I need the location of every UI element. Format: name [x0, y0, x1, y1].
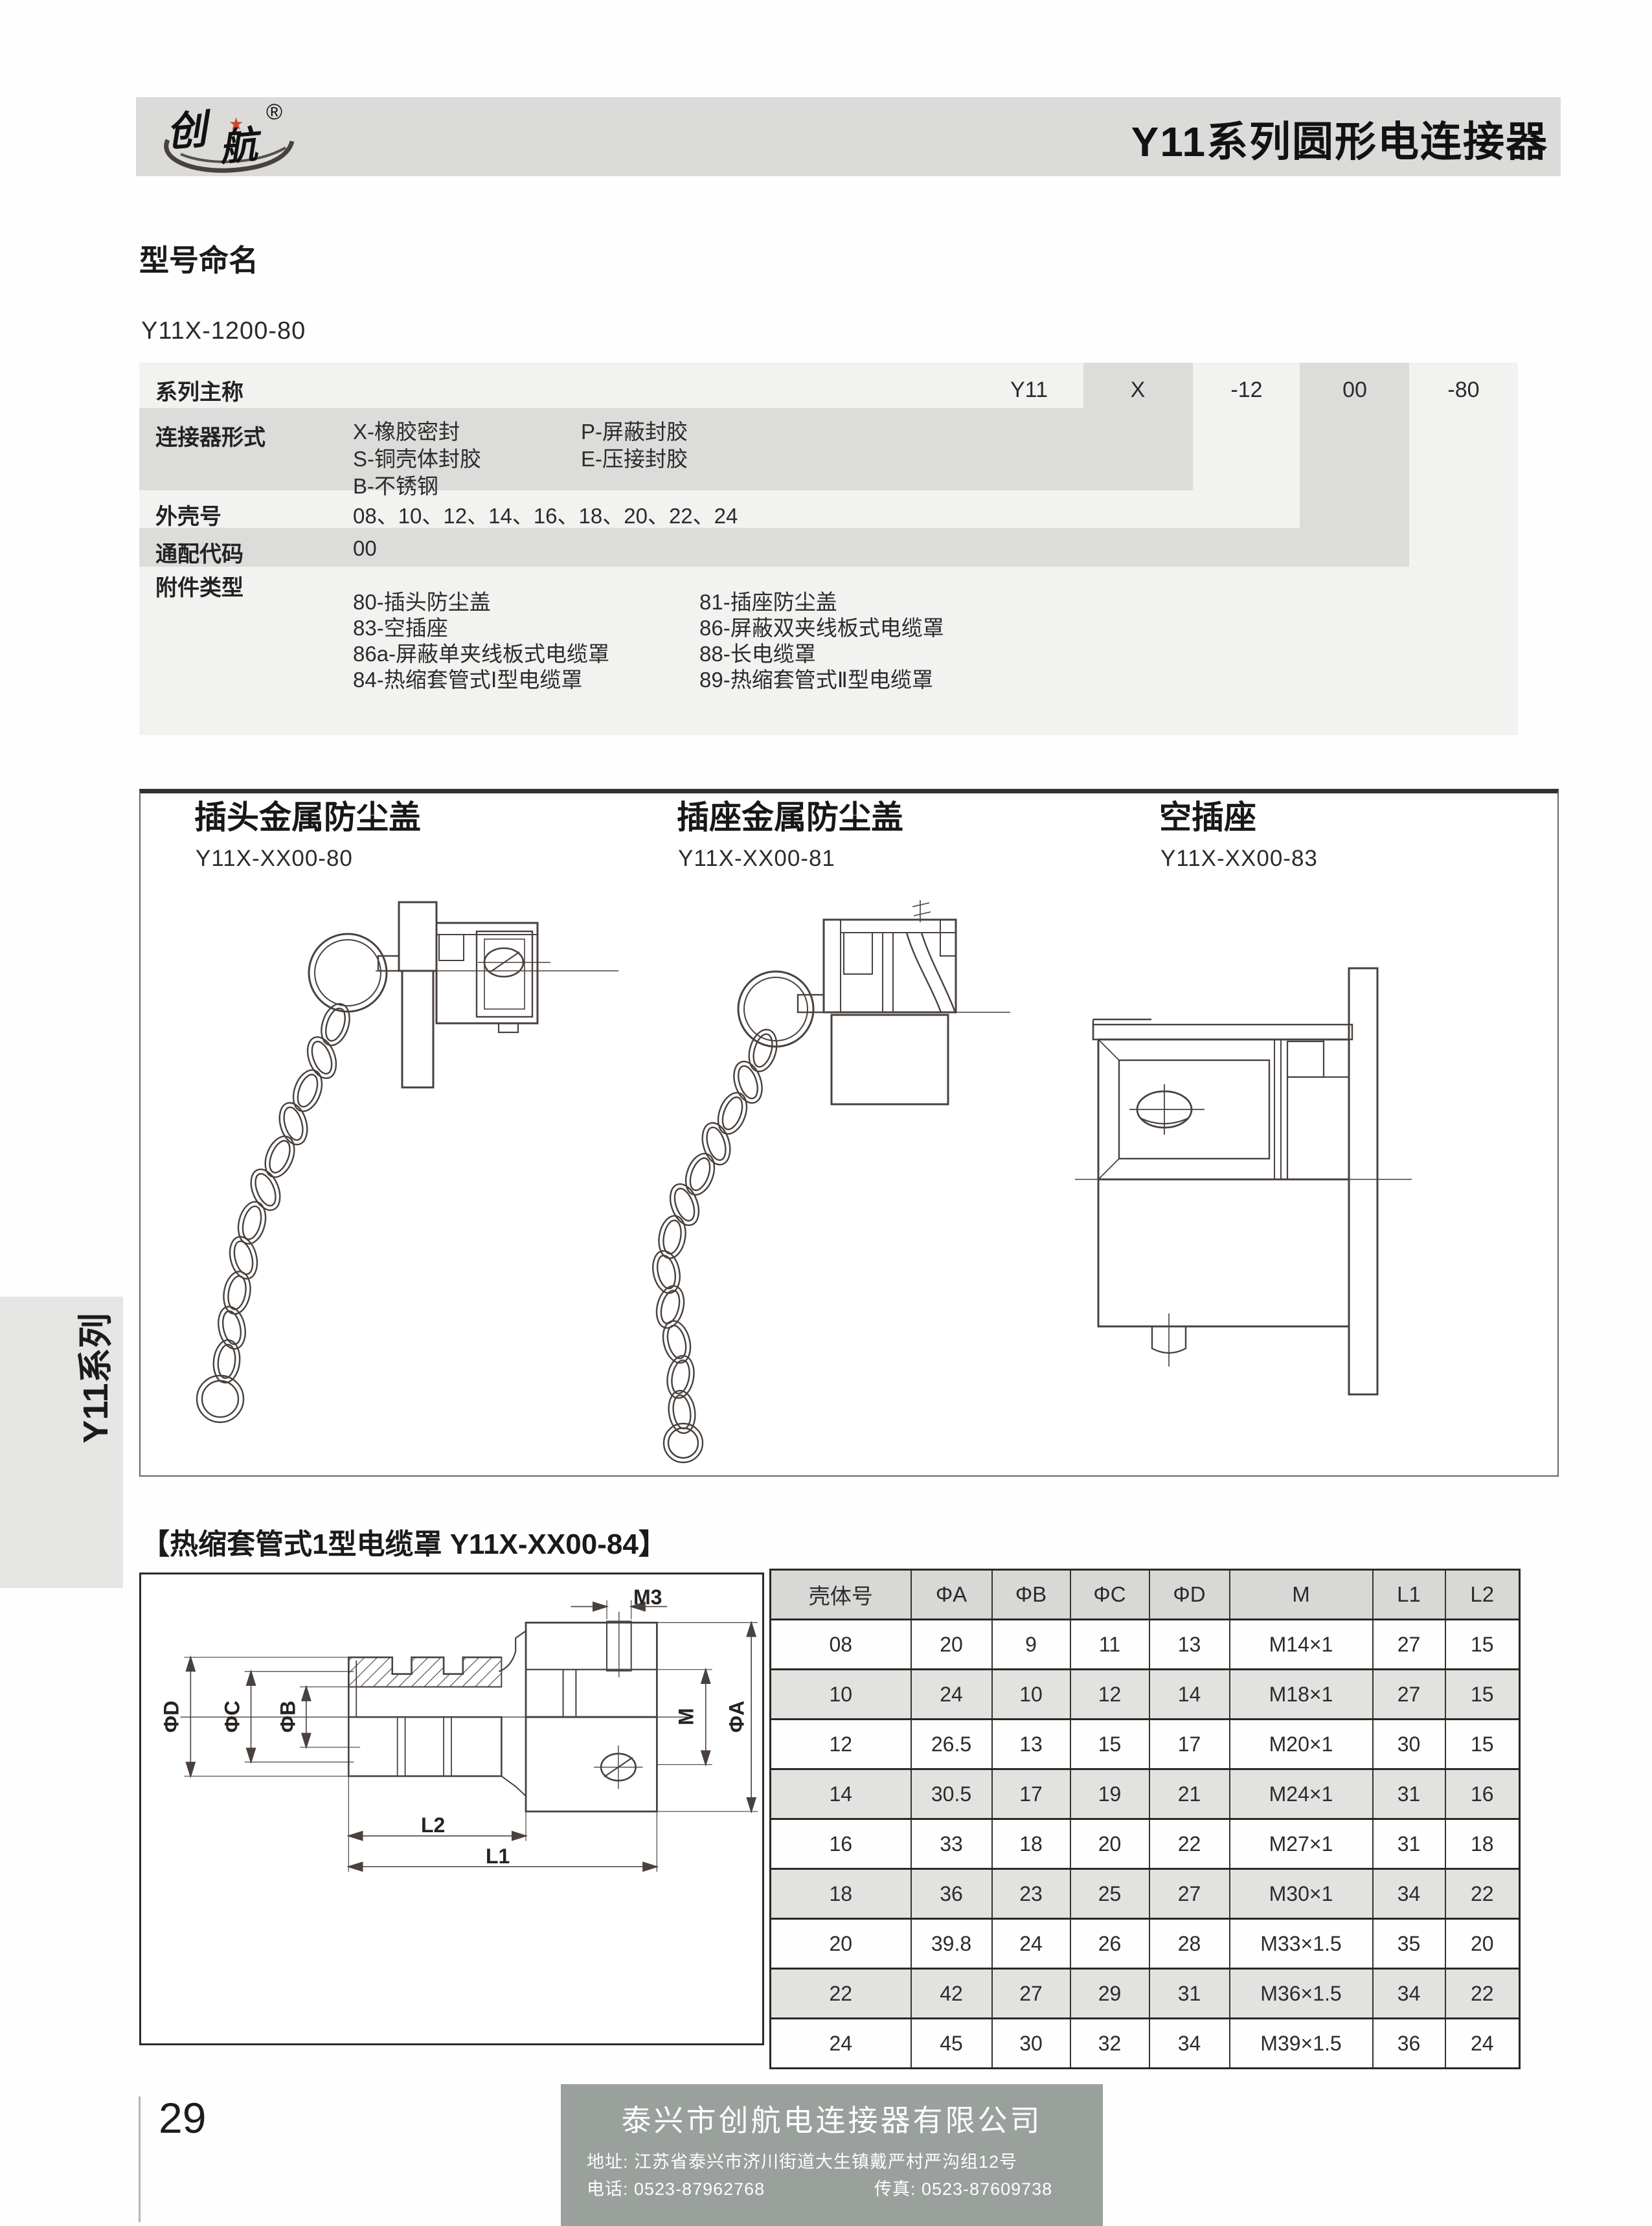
spec-cell: 35	[1373, 1919, 1445, 1969]
spec-table-row: 1430.5171921M24×13116	[771, 1769, 1520, 1819]
spec-cell: M18×1	[1230, 1670, 1373, 1720]
spec-table-row: 1226.5131517M20×13015	[771, 1720, 1520, 1769]
spec-cell: 28	[1149, 1919, 1230, 1969]
code-part-shell: -12	[1208, 372, 1285, 408]
spec-cell: 42	[911, 1969, 992, 2019]
spec-table-row: 1633182022M27×13118	[771, 1819, 1520, 1869]
spec-cell: 20	[911, 1620, 992, 1670]
spec-cell: 27	[992, 1969, 1070, 2019]
spec-cell: 24	[992, 1919, 1070, 1969]
naming-row-band-1	[139, 363, 1083, 408]
spec-cell: 12	[1070, 1670, 1149, 1720]
spec-cell: 34	[1149, 2019, 1230, 2069]
drawing-model-socket-cap: Y11X-XX00-81	[678, 846, 835, 872]
spec-cell: 08	[771, 1620, 911, 1670]
spec-cell: 29	[1070, 1969, 1149, 2019]
spec-cell: 27	[1373, 1620, 1445, 1670]
company-logo: 创 航 ★ ®	[159, 98, 308, 175]
model-example-code: Y11X-1200-80	[141, 317, 306, 345]
spec-cell: 18	[1445, 1819, 1520, 1869]
spec-cell: M36×1.5	[1230, 1969, 1373, 2019]
spec-cell: 18	[771, 1869, 911, 1919]
dim-label-phi-c: ΦC	[221, 1690, 245, 1744]
spec-cell: 14	[1149, 1670, 1230, 1720]
spec-cell: M20×1	[1230, 1720, 1373, 1769]
spec-cell: 26	[1070, 1919, 1149, 1969]
form-option: P-屏蔽封胶	[581, 415, 688, 446]
spec-cell: 17	[992, 1769, 1070, 1819]
row-label-accessory: 附件类型	[155, 570, 243, 602]
spec-cell: 15	[1445, 1620, 1520, 1670]
spec-cell: 22	[1445, 1969, 1520, 2019]
spec-cell: 30.5	[911, 1769, 992, 1819]
company-address: 地址: 江苏省泰兴市济川街道大生镇戴严村严沟组12号	[587, 2148, 1017, 2173]
drawing-title-socket-cap: 插座金属防尘盖	[677, 791, 903, 838]
spec-cell: 32	[1070, 2019, 1149, 2069]
registered-trademark-icon: ®	[266, 100, 282, 124]
form-option: E-压接封胶	[581, 442, 688, 473]
code-part-form: X	[1099, 372, 1177, 408]
spec-cell: M30×1	[1230, 1869, 1373, 1919]
spec-cell: 30	[992, 2019, 1070, 2069]
spec-cell: M24×1	[1230, 1769, 1373, 1819]
common-code: 00	[353, 536, 377, 561]
spec-cell: 17	[1149, 1720, 1230, 1769]
row-label-common: 通配代码	[155, 536, 243, 568]
company-name: 泰兴市创航电连接器有限公司	[561, 2097, 1103, 2140]
spec-cell: 19	[1070, 1769, 1149, 1819]
spec-cell: 13	[1149, 1620, 1230, 1670]
row-label-form: 连接器形式	[155, 420, 266, 451]
dim-label-l1: L1	[486, 1845, 510, 1868]
logo-char-1: 创	[164, 107, 214, 155]
spec-cell: 31	[1373, 1819, 1445, 1869]
spec-cell: 20	[771, 1919, 911, 1969]
spec-cell: 27	[1149, 1869, 1230, 1919]
empty-socket-drawing	[1075, 938, 1438, 1401]
spec-cell: 9	[992, 1620, 1070, 1670]
spec-cell: 27	[1373, 1670, 1445, 1720]
spec-table-row: 2445303234M39×1.53624	[771, 2019, 1520, 2069]
form-option: S-铜壳体封胶	[353, 442, 481, 473]
spec-cell: 12	[771, 1720, 911, 1769]
col-header-phi-d: ΦD	[1149, 1570, 1230, 1620]
spec-cell: 24	[1445, 2019, 1520, 2069]
spec-cell: 20	[1070, 1819, 1149, 1869]
col-header-phi-b: ΦB	[992, 1570, 1070, 1620]
spec-cell: M27×1	[1230, 1819, 1373, 1869]
code-column-80	[1409, 363, 1518, 735]
chain	[197, 1000, 354, 1422]
spec-table-header-row: 壳体号 ΦA ΦB ΦC ΦD M L1 L2	[771, 1570, 1520, 1620]
dim-label-m: M	[675, 1690, 699, 1744]
logo-star-icon: ★	[229, 114, 243, 133]
spec-cell: 20	[1445, 1919, 1520, 1969]
col-header-l2: L2	[1445, 1570, 1520, 1620]
drawing-model-plug-cap: Y11X-XX00-80	[196, 846, 353, 872]
chain	[650, 1027, 782, 1462]
page-title: Y11系列圆形电连接器	[1131, 109, 1548, 168]
col-header-m: M	[1230, 1570, 1373, 1620]
company-fax: 传真: 0523-87609738	[874, 2175, 1052, 2200]
dimension-drawing-panel	[139, 1573, 764, 2045]
section-heading-model-naming: 型号命名	[139, 237, 258, 280]
row-label-series: 系列主称	[155, 374, 243, 406]
col-header-shell: 壳体号	[771, 1570, 911, 1620]
spec-cell: 14	[771, 1769, 911, 1819]
spec-table-body: 082091113M14×127151024101214M18×12715122…	[771, 1620, 1520, 2069]
spec-cell: 45	[911, 2019, 992, 2069]
spec-cell: 36	[1373, 2019, 1445, 2069]
spec-table-row: 082091113M14×12715	[771, 1620, 1520, 1670]
spec-cell: 36	[911, 1869, 992, 1919]
spec-cell: M14×1	[1230, 1620, 1373, 1670]
spec-cell: 10	[771, 1670, 911, 1720]
row-label-shell: 外壳号	[155, 499, 221, 530]
code-part-common: 00	[1316, 372, 1394, 408]
spec-cell: 18	[992, 1819, 1070, 1869]
footer-company-box: 泰兴市创航电连接器有限公司 地址: 江苏省泰兴市济川街道大生镇戴严村严沟组12号…	[561, 2084, 1103, 2226]
dim-label-phi-b: ΦB	[277, 1690, 300, 1744]
spec-cell: 23	[992, 1869, 1070, 1919]
col-header-l1: L1	[1373, 1570, 1445, 1620]
page-number: 29	[159, 2093, 206, 2142]
spec-table-row: 2039.8242628M33×1.53520	[771, 1919, 1520, 1969]
plug-dust-cap-drawing	[162, 900, 628, 1470]
dim-label-m3: M3	[633, 1585, 662, 1609]
accessory-option: 84-热缩套管式Ⅰ型电缆罩	[353, 663, 582, 694]
cable-cover-dimension-drawing	[141, 1574, 762, 2043]
sidebar-series-label: Y11系列	[80, 1294, 112, 1462]
spec-cell: 22	[1149, 1819, 1230, 1869]
drawing-title-plug-cap: 插头金属防尘盖	[194, 791, 421, 838]
spec-cell: 31	[1373, 1769, 1445, 1819]
spec-cell: 39.8	[911, 1919, 992, 1969]
spec-cell: M33×1.5	[1230, 1919, 1373, 1969]
spec-cell: 15	[1070, 1720, 1149, 1769]
footer-divider	[139, 2096, 141, 2222]
dim-label-phi-d: ΦD	[160, 1690, 184, 1744]
spec-cell: 16	[1445, 1769, 1520, 1819]
spec-table-row: 1024101214M18×12715	[771, 1670, 1520, 1720]
spec-cell: 33	[911, 1819, 992, 1869]
spec-cell: 11	[1070, 1620, 1149, 1670]
spec-table-row: 1836232527M30×13422	[771, 1869, 1520, 1919]
section-heading-heatshrink: 【热缩套管式1型电缆罩 Y11X-XX00-84】	[141, 1521, 667, 1562]
form-option: X-橡胶密封	[353, 415, 460, 446]
spec-cell: 21	[1149, 1769, 1230, 1819]
spec-cell: M39×1.5	[1230, 2019, 1373, 2069]
drawing-model-empty-socket: Y11X-XX00-83	[1160, 846, 1318, 872]
spec-cell: 15	[1445, 1720, 1520, 1769]
spec-cell: 24	[911, 1670, 992, 1720]
spec-cell: 34	[1373, 1869, 1445, 1919]
datasheet-page: 创 航 ★ ® Y11系列圆形电连接器 型号命名 Y11X-1200-80 Y1…	[0, 0, 1652, 2226]
col-header-phi-a: ΦA	[911, 1570, 992, 1620]
spec-cell: 13	[992, 1720, 1070, 1769]
col-header-phi-c: ΦC	[1070, 1570, 1149, 1620]
spec-table-row: 2242272931M36×1.53422	[771, 1969, 1520, 2019]
spec-cell: 26.5	[911, 1720, 992, 1769]
dim-label-l2: L2	[421, 1813, 445, 1837]
accessory-option: 89-热缩套管式Ⅱ型电缆罩	[699, 663, 933, 694]
company-phone: 电话: 0523-87962768	[587, 2175, 765, 2200]
shell-sizes: 08、10、12、14、16、18、20、22、24	[353, 499, 738, 530]
spec-cell: 15	[1445, 1670, 1520, 1720]
form-option: B-不锈钢	[353, 469, 438, 500]
spec-cell: 24	[771, 2019, 911, 2069]
spec-cell: 22	[1445, 1869, 1520, 1919]
spec-cell: 31	[1149, 1969, 1230, 2019]
code-part-series: Y11	[990, 372, 1068, 408]
dim-label-phi-a: ΦA	[725, 1690, 749, 1744]
drawing-title-empty-socket: 空插座	[1159, 791, 1256, 838]
spec-table: 壳体号 ΦA ΦB ΦC ΦD M L1 L2 082091113M14×127…	[769, 1569, 1521, 2069]
spec-cell: 16	[771, 1819, 911, 1869]
spec-cell: 25	[1070, 1869, 1149, 1919]
spec-cell: 34	[1373, 1969, 1445, 2019]
socket-dust-cap-drawing	[638, 900, 1059, 1470]
spec-cell: 10	[992, 1670, 1070, 1720]
spec-cell: 30	[1373, 1720, 1445, 1769]
naming-row-band-4	[139, 528, 1300, 567]
spec-cell: 22	[771, 1969, 911, 2019]
code-part-accessory: -80	[1425, 372, 1502, 408]
